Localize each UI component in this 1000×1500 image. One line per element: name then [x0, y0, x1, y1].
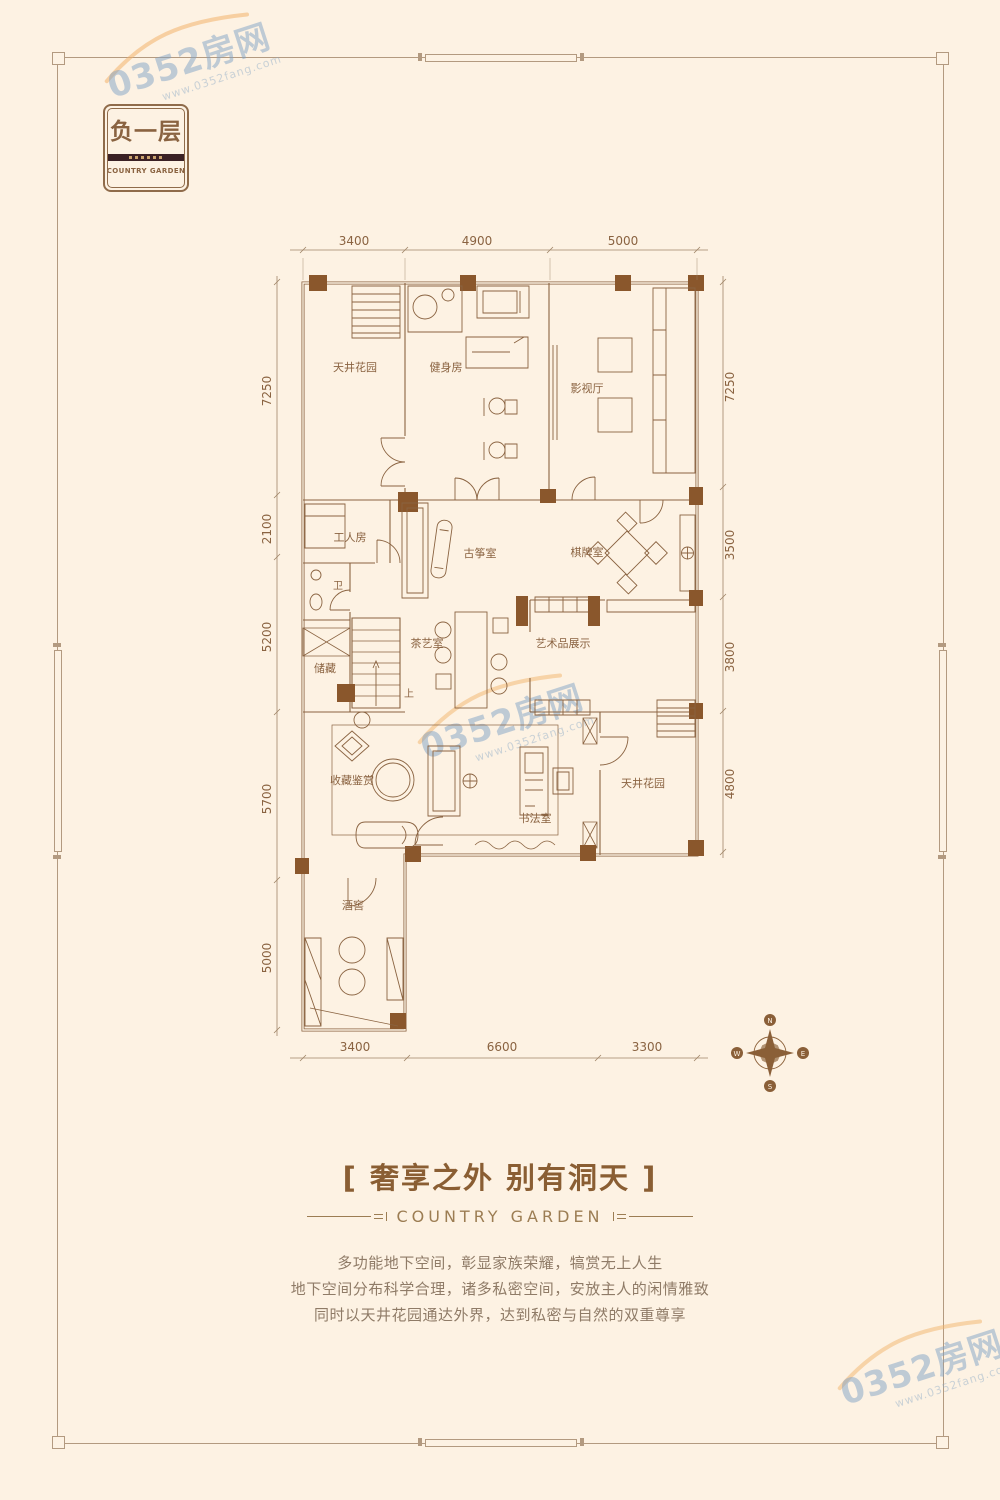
dim-label: 3300 — [632, 1040, 663, 1054]
compass-s: S — [768, 1083, 773, 1091]
description-line: 同时以天井花园通达外界，达到私密与自然的双重尊享 — [0, 1302, 1000, 1328]
dim-label: 3400 — [340, 1040, 371, 1054]
compass-icon: N E S W — [731, 1014, 809, 1092]
dim-label: 6600 — [487, 1040, 518, 1054]
doors — [330, 438, 663, 906]
dimension-labels: 3400 4900 5000 3400 6600 3300 7250 2100 … — [260, 234, 737, 1054]
stairs-up-label: 上 — [404, 688, 414, 700]
staircase — [352, 618, 400, 708]
page-canvas: 0352房网 www.0352fang.com 0352房网 www.0352f… — [0, 0, 1000, 1500]
room-label-tea: 茶艺室 — [411, 636, 444, 650]
floor-badge-subtitle: COUNTRY GARDEN — [107, 167, 185, 175]
room-label-storage: 储藏 — [314, 661, 336, 675]
dim-label: 3800 — [723, 642, 737, 673]
frame-corner-icon — [52, 1436, 65, 1449]
room-label-chess: 棋牌室 — [571, 545, 604, 559]
display-cabinets — [535, 597, 695, 715]
exterior-walls — [303, 283, 697, 1030]
compass-e: E — [801, 1050, 805, 1058]
brand-ornament-right — [613, 1212, 693, 1221]
dim-label: 7250 — [260, 376, 274, 407]
x-post — [583, 718, 597, 744]
dim-label: 3400 — [339, 234, 370, 248]
room-label-calligraphy: 书法室 — [519, 811, 552, 825]
x-post — [583, 822, 597, 848]
frame-corner-icon — [936, 52, 949, 65]
page-title: [ 奢享之外 别有洞天 ] — [0, 1155, 1000, 1197]
dim-label: 5000 — [608, 234, 639, 248]
dim-label: 4800 — [723, 769, 737, 800]
brand-ornament-left — [307, 1212, 387, 1221]
dim-label: 5200 — [260, 622, 274, 653]
louver-grille — [352, 286, 400, 338]
frame-corner-icon — [52, 52, 65, 65]
compass-w: W — [734, 1050, 741, 1058]
floor-badge-band — [108, 154, 184, 161]
floor-badge: 负一层 COUNTRY GARDEN — [103, 104, 189, 192]
description: 多功能地下空间，彰显家族荣耀，犒赏无上人生 地下空间分布科学合理，诸多私密空间，… — [0, 1250, 1000, 1328]
frame-edge-ornament — [54, 650, 62, 852]
exercise-bike — [484, 398, 517, 416]
room-labels: 天井花园 健身房 影视厅 工人房 卫 古筝室 棋牌室 茶艺室 艺术品展示 储藏 … — [314, 360, 665, 912]
dim-label: 4900 — [462, 234, 493, 248]
room-label-bath: 卫 — [333, 581, 343, 592]
room-label-theater: 影视厅 — [571, 381, 604, 395]
dim-label: 5700 — [260, 784, 274, 815]
room-label-worker: 工人房 — [334, 531, 367, 544]
room-label-wine: 酒窖 — [342, 898, 364, 912]
room-label-gym: 健身房 — [430, 360, 463, 374]
brand-row: COUNTRY GARDEN — [0, 1207, 1000, 1226]
wall-shelf — [680, 515, 695, 591]
room-label-art: 艺术品展示 — [536, 637, 591, 650]
exercise-bike — [484, 442, 517, 460]
dim-label: 2100 — [260, 514, 274, 545]
frame-edge-ornament — [939, 650, 947, 852]
furniture — [305, 286, 695, 1026]
floor-plan: 3400 4900 5000 3400 6600 3300 7250 2100 … — [250, 230, 820, 1130]
description-line: 地下空间分布科学合理，诸多私密空间，安放主人的闲情雅致 — [0, 1276, 1000, 1302]
floor-badge-title: 负一层 — [110, 121, 182, 144]
dim-label: 3500 — [723, 530, 737, 561]
frame-corner-icon — [936, 1436, 949, 1449]
floor-badge-inner: 负一层 COUNTRY GARDEN — [107, 108, 185, 188]
frame-edge-ornament — [425, 1439, 577, 1447]
room-label-garden-bottom: 天井花园 — [621, 776, 665, 790]
compass-n: N — [767, 1017, 772, 1025]
room-label-garden-top: 天井花园 — [333, 360, 377, 374]
dim-label: 7250 — [723, 372, 737, 403]
dim-label: 5000 — [260, 943, 274, 974]
storage-crate — [303, 628, 350, 656]
description-line: 多功能地下空间，彰显家族荣耀，犒赏无上人生 — [0, 1250, 1000, 1276]
brand-name: COUNTRY GARDEN — [396, 1207, 603, 1226]
frame-edge-ornament — [425, 54, 577, 62]
room-label-collection: 收藏鉴赏 — [330, 773, 374, 787]
room-label-guzheng: 古筝室 — [464, 546, 497, 560]
